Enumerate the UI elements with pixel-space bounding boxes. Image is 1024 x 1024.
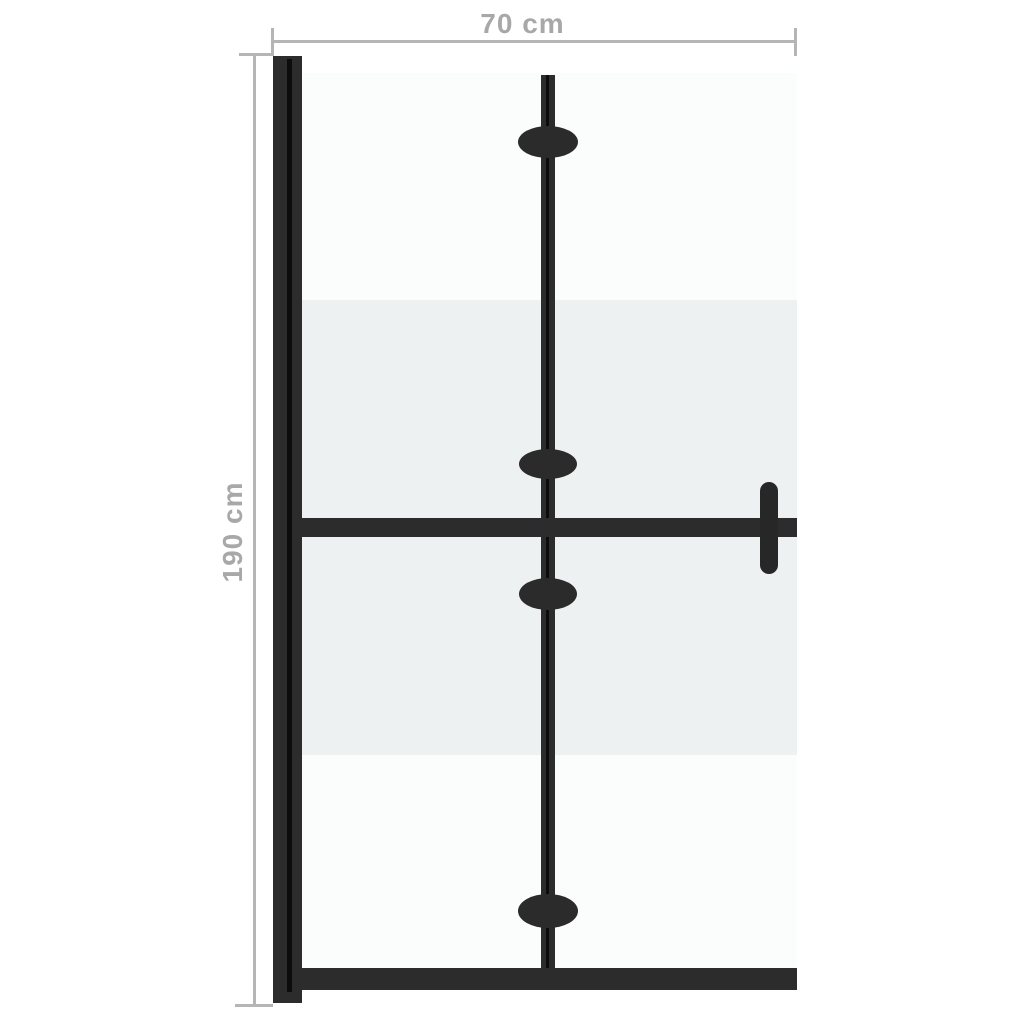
fold-hinge-1: [518, 126, 578, 158]
wall-profile-seam: [287, 59, 292, 992]
bottom-rail: [302, 968, 797, 990]
fold-hinge-4: [518, 894, 578, 928]
stabiliser-crossbar: [300, 518, 797, 537]
width-dimension-tick-left: [271, 28, 274, 56]
width-dimension-line: [272, 40, 797, 43]
height-dimension-label: 190 cm: [217, 452, 249, 612]
height-dimension-line: [253, 53, 256, 1006]
product-diagram: 70 cm 190 cm: [0, 0, 1024, 1024]
height-dimension-tick-bottom: [235, 1004, 273, 1007]
bracket-handle: [760, 482, 778, 574]
height-dimension-tick-top: [239, 53, 271, 56]
fold-hinge-2: [519, 449, 577, 479]
width-dimension-tick-right: [794, 28, 797, 56]
fold-hinge-3: [519, 578, 577, 610]
width-dimension-label: 70 cm: [455, 8, 590, 40]
